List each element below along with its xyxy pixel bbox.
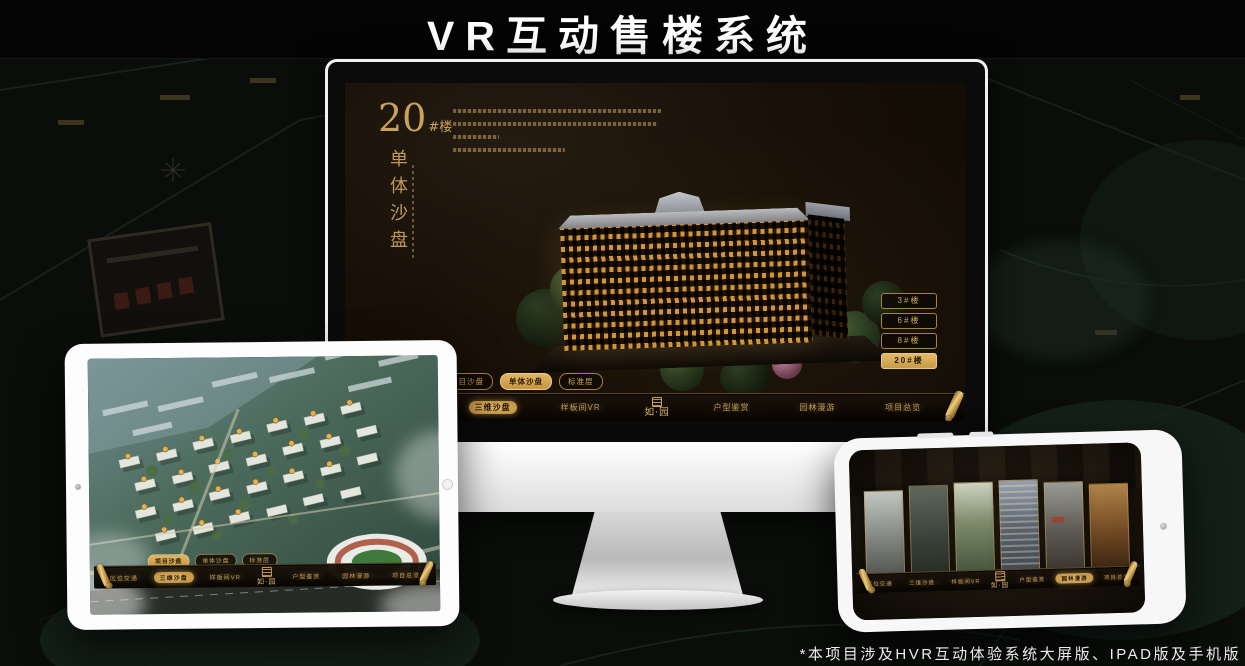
description-paragraph xyxy=(453,109,663,161)
building-side-wall xyxy=(808,214,848,338)
nav-item-3d-sandtable[interactable]: 三维沙盘 xyxy=(903,576,941,587)
gallery-panel[interactable] xyxy=(864,490,905,581)
nav-item-garden-tour[interactable]: 园林漫游 xyxy=(1055,572,1093,583)
description-line xyxy=(453,109,661,113)
brand-seal-icon xyxy=(652,397,662,407)
building-number: 20#楼 xyxy=(378,99,452,137)
brand-logo-text: 如·园 xyxy=(991,582,1009,589)
nav-item-showroom-vr[interactable]: 样板间VR xyxy=(204,571,247,582)
nav-item-3d-sandtable[interactable]: 三维沙盘 xyxy=(154,571,194,582)
building-subtitle-vertical: 单体沙盘 xyxy=(384,149,410,257)
nav-item-floorplans[interactable]: 户型鉴赏 xyxy=(1013,573,1051,584)
tablet-device: 项目沙盘 单体沙盘 标准层 区位交通 三维沙盘 样板间VR 如·园 户型鉴赏 园… xyxy=(65,340,460,630)
building-model xyxy=(549,178,855,378)
nav-item-garden-tour[interactable]: 园林漫游 xyxy=(336,569,376,580)
floor-button-3[interactable]: 3#楼 xyxy=(881,293,937,309)
monitor-stand-base xyxy=(553,590,763,610)
tablet-screen: 项目沙盘 单体沙盘 标准层 区位交通 三维沙盘 样板间VR 如·园 户型鉴赏 园… xyxy=(88,355,441,615)
floor-button-8[interactable]: 8#楼 xyxy=(881,333,937,349)
floor-button-20[interactable]: 20#楼 xyxy=(881,353,937,369)
vertical-caption-decor xyxy=(412,165,414,261)
gallery-panel[interactable] xyxy=(909,485,951,584)
brand-logo[interactable]: 如·园 xyxy=(644,397,669,418)
brand-seal-icon xyxy=(261,567,271,577)
volume-button[interactable] xyxy=(917,433,953,439)
gallery-panel[interactable] xyxy=(1089,483,1131,576)
scroll-roller-icon[interactable] xyxy=(944,389,964,420)
description-line xyxy=(453,148,565,152)
poster: VR互动售楼系统 20#楼 单体沙盘 xyxy=(0,0,1245,666)
building-facade-windows xyxy=(560,220,812,351)
tab-single-sandtable[interactable]: 单体沙盘 xyxy=(500,373,552,390)
monitor-stand xyxy=(570,512,745,596)
brand-logo[interactable]: 如·园 xyxy=(257,567,277,585)
nav-item-floorplans[interactable]: 户型鉴赏 xyxy=(286,570,326,581)
phone-device: 区位交通 三维沙盘 样板间VR 如·园 户型鉴赏 园林漫游 项目总览 xyxy=(833,429,1186,633)
brand-seal-icon xyxy=(995,571,1005,581)
description-line xyxy=(453,135,499,139)
camera-icon xyxy=(1160,523,1167,530)
nav-item-3d-sandtable[interactable]: 三维沙盘 xyxy=(469,401,517,414)
page-title: VR互动售楼系统 xyxy=(0,2,1245,62)
floor-button-group: 3#楼 6#楼 8#楼 20#楼 xyxy=(881,293,937,369)
brand-logo-text: 如·园 xyxy=(257,578,277,585)
nav-item-garden-tour[interactable]: 园林漫游 xyxy=(793,401,841,414)
home-button[interactable] xyxy=(442,479,453,490)
subtab-group: 项目沙盘 单体沙盘 标准层 xyxy=(441,373,603,390)
nav-item-floorplans[interactable]: 户型鉴赏 xyxy=(708,401,756,414)
description-line xyxy=(453,122,657,126)
tab-standard-floor[interactable]: 标准层 xyxy=(559,373,603,390)
nav-item-showroom-vr[interactable]: 样板间VR xyxy=(945,575,986,586)
nav-item-showroom-vr[interactable]: 样板间VR xyxy=(554,401,606,414)
gallery-panel[interactable] xyxy=(1044,481,1086,580)
camera-icon xyxy=(75,484,81,490)
building-title-block: 20#楼 单体沙盘 xyxy=(378,99,452,257)
main-navbar: 区位交通 三维沙盘 样板间VR 如·园 户型鉴赏 园林漫游 项目总览 xyxy=(94,562,436,589)
phone-screen: 区位交通 三维沙盘 样板间VR 如·园 户型鉴赏 园林漫游 项目总览 xyxy=(849,442,1146,620)
footnote-text: *本项目涉及HVR互动体验系统大屏版、IPAD版及手机版 xyxy=(800,643,1241,664)
brand-logo-text: 如·园 xyxy=(644,408,669,418)
brand-logo[interactable]: 如·园 xyxy=(990,571,1009,589)
nav-item-overview[interactable]: 项目总览 xyxy=(879,401,927,414)
power-button[interactable] xyxy=(969,431,993,437)
floor-button-6[interactable]: 6#楼 xyxy=(881,313,937,329)
